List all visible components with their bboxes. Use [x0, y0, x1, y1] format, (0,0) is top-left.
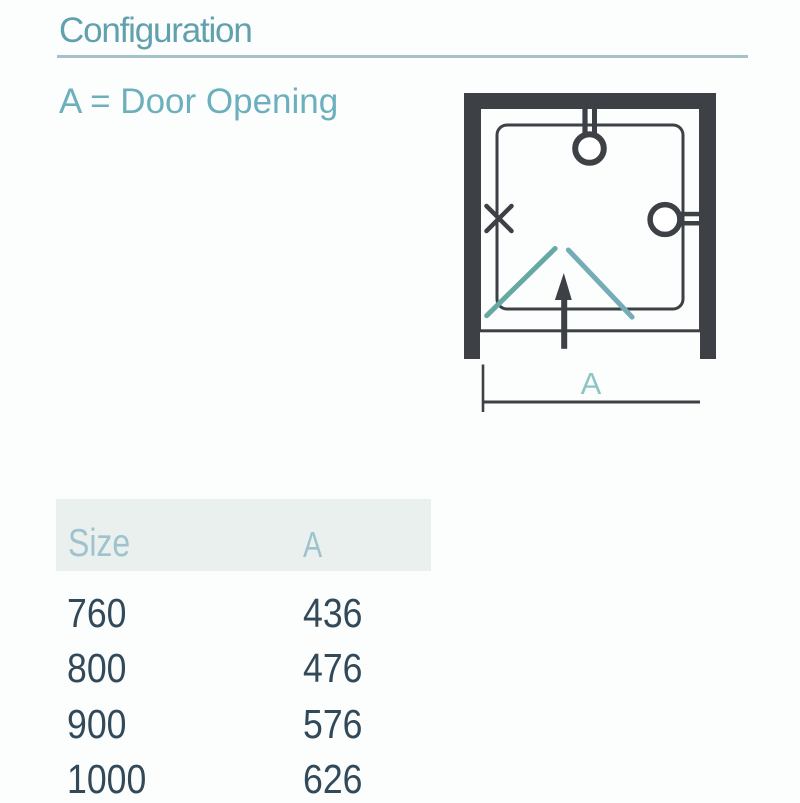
svg-text:A: A [581, 366, 602, 401]
